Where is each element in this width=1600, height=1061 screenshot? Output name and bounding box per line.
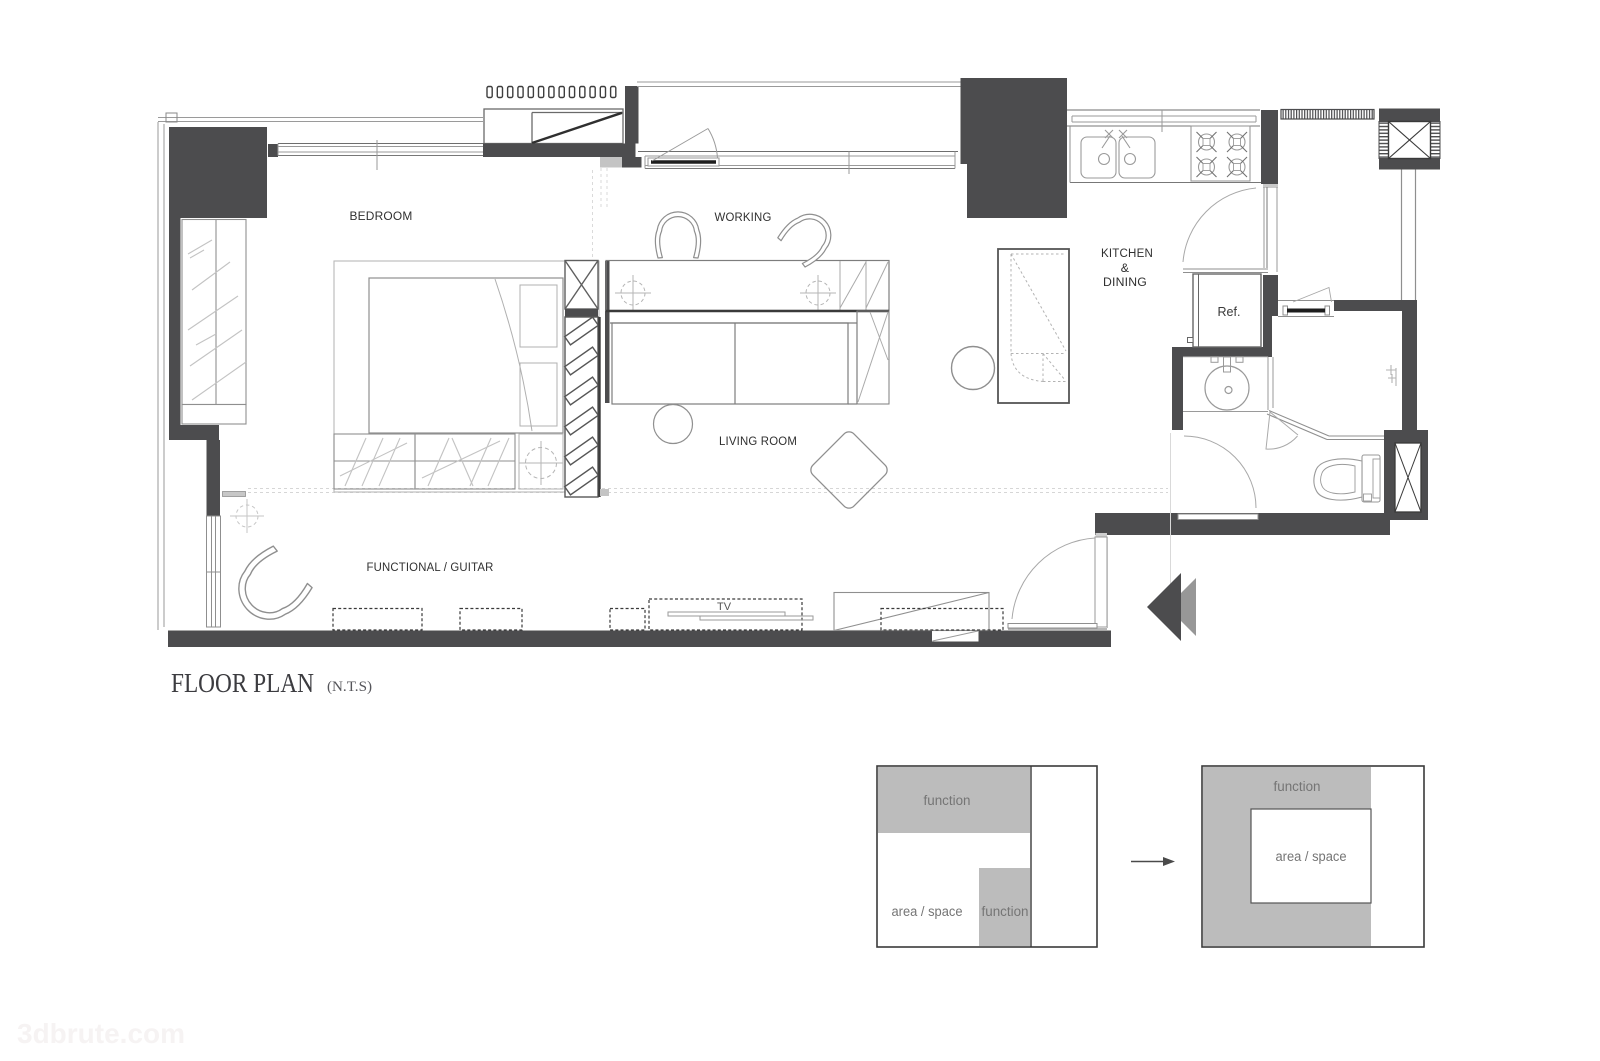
svg-text:FLOOR PLAN: FLOOR PLAN	[171, 668, 314, 698]
svg-text:FUNCTIONAL / GUITAR: FUNCTIONAL / GUITAR	[367, 560, 494, 574]
svg-text:Ref.: Ref.	[1218, 305, 1241, 319]
svg-text:&: &	[1121, 261, 1130, 275]
svg-text:KITCHEN: KITCHEN	[1101, 246, 1153, 260]
svg-text:DINING: DINING	[1103, 275, 1147, 289]
svg-text:area / space: area / space	[892, 904, 963, 919]
svg-text:(N.T.S): (N.T.S)	[327, 679, 372, 695]
svg-text:3dbrute.com: 3dbrute.com	[17, 1018, 185, 1049]
svg-text:BEDROOM: BEDROOM	[350, 209, 413, 223]
svg-text:function: function	[982, 904, 1029, 919]
svg-text:TV: TV	[717, 601, 732, 613]
svg-text:LIVING ROOM: LIVING ROOM	[719, 434, 797, 448]
svg-text:function: function	[1274, 779, 1321, 794]
svg-text:area / space: area / space	[1276, 849, 1347, 864]
svg-text:WORKING: WORKING	[715, 210, 772, 224]
svg-text:function: function	[924, 793, 971, 808]
